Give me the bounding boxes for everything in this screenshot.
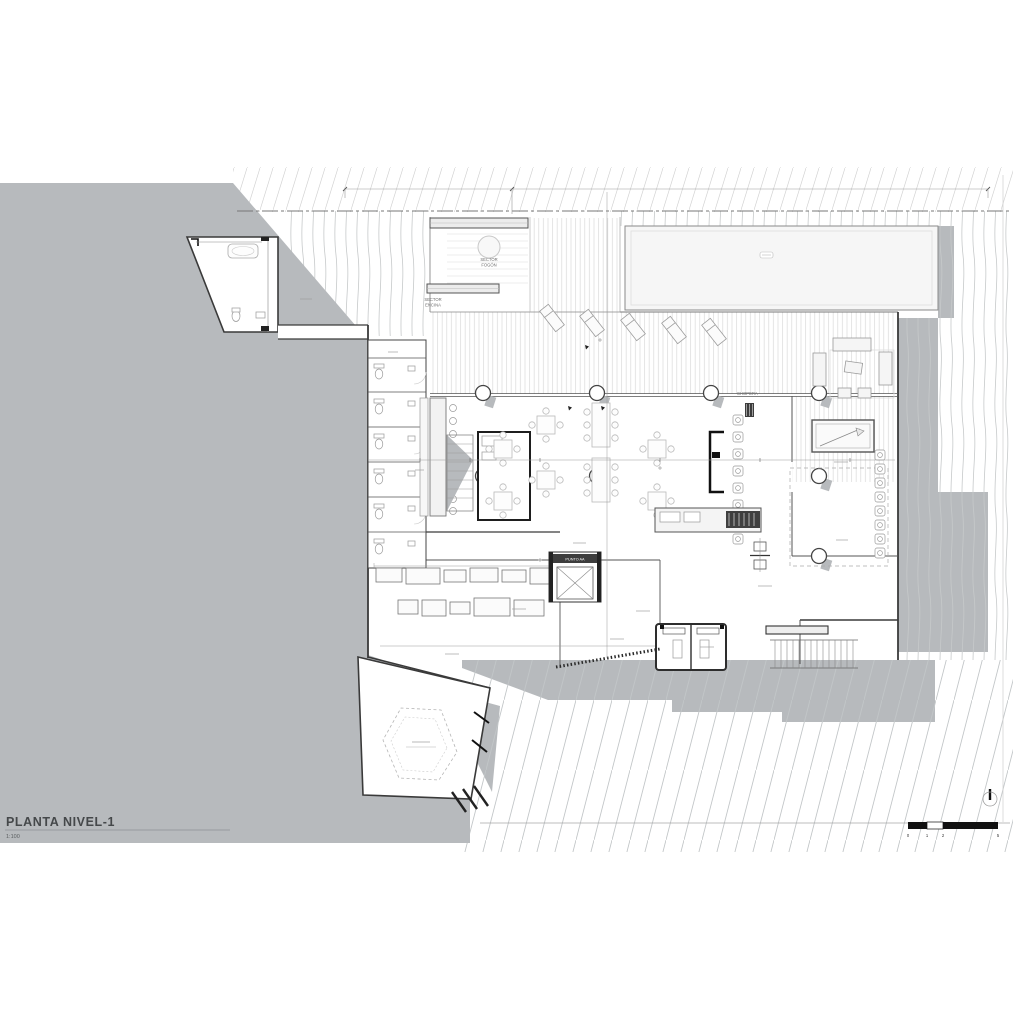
label-sector-encina: SECTOR ENCINA: [424, 297, 441, 308]
floor-plan-canvas: SECTOR FOGÓN SECTOR ENCINA: [0, 0, 1024, 1024]
label-chopera: CHOPERA: [737, 391, 758, 396]
elevator: PUNTO AA: [549, 552, 601, 602]
wc-stalls: [368, 340, 426, 568]
label-sector-fogon: SECTOR: [480, 257, 497, 262]
servery-counter: [655, 508, 761, 532]
label-elevator: PUNTO AA: [565, 558, 585, 562]
entry-vestibule: [656, 624, 726, 670]
sheet-scale: 1:100: [6, 834, 20, 840]
svg-text:SECTOR: SECTOR: [424, 297, 441, 302]
floor-plan-sheet: SECTOR FOGÓN SECTOR ENCINA: [0, 0, 1024, 1024]
billiards-table: [812, 420, 874, 452]
svg-text:FOGÓN: FOGÓN: [481, 263, 496, 268]
walkway: [278, 325, 368, 339]
pool: [625, 226, 938, 310]
svg-text:ENCINA: ENCINA: [425, 303, 441, 308]
sheet-title: PLANTA NIVEL-1: [6, 815, 115, 829]
terrain-upper-hatch: [233, 167, 1013, 212]
